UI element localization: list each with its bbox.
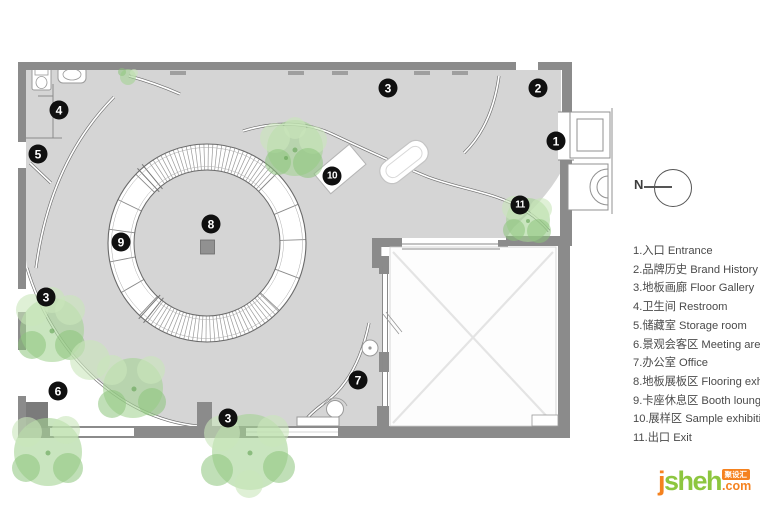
floor-plan-page: 123334567891011 N 1.入口 Entrance2.品牌历史 Br… xyxy=(0,0,760,506)
legend-item-4: 4.卫生间 Restroom xyxy=(633,298,760,317)
plan-marker-2: 2 xyxy=(529,79,548,98)
legend-item-3: 3.地板画廊 Floor Gallery xyxy=(633,279,760,298)
entrance-vestibule xyxy=(568,108,612,214)
legend-item-8: 8.地板展板区 Flooring exhibition xyxy=(633,373,760,392)
plan-marker-3: 3 xyxy=(37,288,56,307)
plan-marker-10: 10 xyxy=(323,167,342,186)
compass-circle xyxy=(654,169,692,207)
room-legend: 1.入口 Entrance2.品牌历史 Brand History3.地板画廊 … xyxy=(633,242,760,448)
plan-marker-11: 11 xyxy=(511,196,530,215)
center-column xyxy=(201,240,215,254)
plan-marker-8: 8 xyxy=(202,215,221,234)
plan-marker-1: 1 xyxy=(547,132,566,151)
office-stool xyxy=(362,340,378,356)
north-compass: N xyxy=(630,165,710,211)
legend-item-5: 5.储藏室 Storage room xyxy=(633,317,760,336)
legend-item-9: 9.卡座休息区 Booth lounge xyxy=(633,392,760,411)
legend-item-11: 11.出口 Exit xyxy=(633,429,760,448)
watermark-tld: .com xyxy=(722,480,751,493)
plan-marker-4: 4 xyxy=(50,101,69,120)
exit-door xyxy=(568,164,608,210)
plan-marker-7: 7 xyxy=(349,371,368,390)
plan-marker-6: 6 xyxy=(49,382,68,401)
legend-item-6: 6.景观会客区 Meeting area xyxy=(633,336,760,355)
office-desk xyxy=(297,417,339,426)
void-room xyxy=(383,244,559,426)
watermark-text: jsheh xyxy=(658,467,721,497)
plan-marker-9: 9 xyxy=(112,233,131,252)
legend-item-2: 2.品牌历史 Brand History xyxy=(633,261,760,280)
legend-item-1: 1.入口 Entrance xyxy=(633,242,760,261)
plan-marker-3: 3 xyxy=(379,79,398,98)
plan-marker-5: 5 xyxy=(29,145,48,164)
legend-item-7: 7.办公室 Office xyxy=(633,354,760,373)
site-watermark-logo: jsheh 聚设汇 .com xyxy=(658,467,751,497)
plan-marker-3: 3 xyxy=(219,409,238,428)
room-corner-fixture xyxy=(532,415,558,426)
north-label: N xyxy=(634,177,643,192)
watermark-badge: 聚设汇 xyxy=(722,469,750,480)
legend-item-10: 10.展样区 Sample exhibition xyxy=(633,410,760,429)
